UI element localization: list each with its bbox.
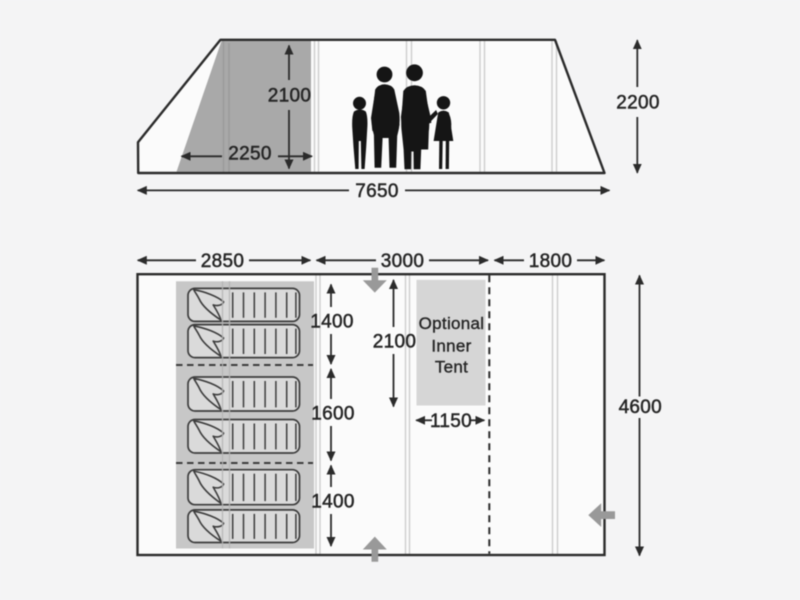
svg-text:3000: 3000: [381, 251, 424, 272]
svg-text:2850: 2850: [201, 251, 244, 272]
svg-text:2100: 2100: [373, 332, 416, 353]
svg-text:1400: 1400: [310, 311, 353, 332]
svg-text:1400: 1400: [311, 491, 354, 512]
svg-text:Inner: Inner: [431, 337, 471, 356]
svg-text:2200: 2200: [616, 93, 659, 114]
svg-text:1150: 1150: [430, 411, 472, 432]
svg-text:4600: 4600: [619, 397, 662, 418]
svg-text:Optional: Optional: [419, 314, 485, 333]
svg-text:1600: 1600: [311, 404, 354, 425]
svg-text:Tent: Tent: [435, 358, 468, 377]
svg-text:7650: 7650: [355, 181, 398, 202]
svg-text:2100: 2100: [268, 86, 311, 107]
svg-text:2250: 2250: [228, 143, 271, 164]
svg-text:1800: 1800: [529, 251, 572, 272]
